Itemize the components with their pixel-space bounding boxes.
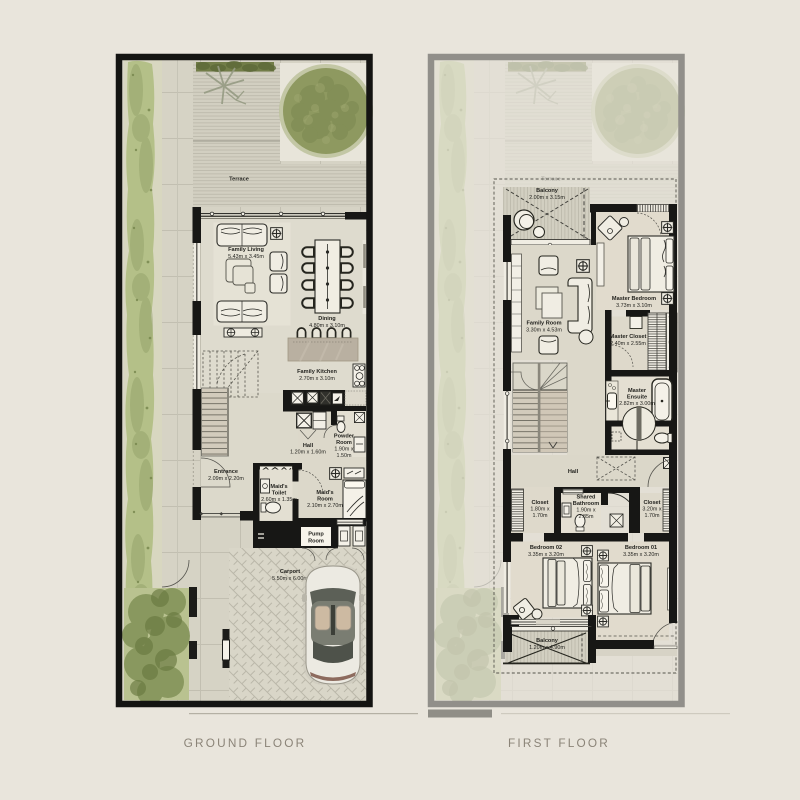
svg-text:3.30m x 4.53m: 3.30m x 4.53m [526,328,562,334]
svg-text:1.70m: 1.70m [533,513,548,519]
svg-text:Closet: Closet [643,500,660,506]
svg-text:Closet: Closet [531,500,548,506]
svg-text:Shared: Shared [577,495,597,501]
svg-text:Dining: Dining [318,316,336,322]
svg-text:2.40m x 2.55m: 2.40m x 2.55m [610,341,646,347]
svg-text:2.70m x 3.10m: 2.70m x 3.10m [299,376,335,382]
svg-text:Hall: Hall [568,469,579,475]
svg-text:2.82m x 3.00m: 2.82m x 3.00m [619,401,655,407]
svg-text:Room: Room [308,539,324,545]
svg-text:1.80m x: 1.80m x [530,507,549,513]
svg-text:Balcony: Balcony [536,638,559,644]
svg-text:1.70m: 1.70m [645,513,660,519]
svg-text:Ensuite: Ensuite [627,395,647,401]
svg-text:5.43m x 3.45m: 5.43m x 3.45m [228,254,264,260]
svg-text:2.60m x 1.35m: 2.60m x 1.35m [261,497,297,503]
svg-text:Family Kitchen: Family Kitchen [297,369,337,375]
svg-text:2.10m x 2.70m: 2.10m x 2.70m [307,503,343,509]
svg-text:Powder: Powder [334,434,355,440]
svg-text:FIRST FLOOR: FIRST FLOOR [508,736,610,750]
svg-text:GROUND FLOOR: GROUND FLOOR [184,736,307,750]
svg-text:Toilet: Toilet [272,491,287,497]
svg-text:2.85m: 2.85m [579,514,594,520]
svg-text:1.20m x 4.90m: 1.20m x 4.90m [529,645,565,651]
svg-text:Balcony: Balcony [536,188,559,194]
svg-text:1.90m x: 1.90m x [334,447,353,453]
svg-text:Maid's: Maid's [270,484,287,490]
svg-text:Bedroom 01: Bedroom 01 [625,545,657,551]
svg-text:2.09m x 2.20m: 2.09m x 2.20m [208,476,244,482]
svg-text:Room: Room [336,440,352,446]
svg-text:Hall: Hall [303,443,314,449]
svg-text:1.50m: 1.50m [337,453,352,459]
svg-text:Room: Room [317,497,333,503]
svg-text:Carport: Carport [280,569,300,575]
svg-text:3.35m x 3.20m: 3.35m x 3.20m [528,552,564,558]
svg-text:Master Closet: Master Closet [610,334,647,340]
svg-text:Family Living: Family Living [228,247,264,253]
svg-text:Entrance: Entrance [214,469,238,475]
svg-text:1.90m x: 1.90m x [576,508,595,514]
svg-text:3.73m x 3.10m: 3.73m x 3.10m [616,303,652,309]
svg-text:Master Bedroom: Master Bedroom [612,296,656,302]
svg-text:Master: Master [628,388,647,394]
svg-text:Maid's: Maid's [316,490,333,496]
svg-text:Family Room: Family Room [526,321,561,327]
svg-text:Bathroom: Bathroom [573,501,599,507]
svg-text:3.35m x 3.20m: 3.35m x 3.20m [623,552,659,558]
svg-text:Terrace: Terrace [229,177,249,183]
svg-text:Pump: Pump [308,532,324,538]
svg-text:Bedroom 02: Bedroom 02 [530,545,562,551]
svg-text:2.00m x 3.15m: 2.00m x 3.15m [529,195,565,201]
svg-text:1.20m x 1.60m: 1.20m x 1.60m [290,450,326,456]
svg-text:5.50m x 6.00m: 5.50m x 6.00m [272,576,308,582]
svg-text:3.20m x: 3.20m x [642,507,661,513]
